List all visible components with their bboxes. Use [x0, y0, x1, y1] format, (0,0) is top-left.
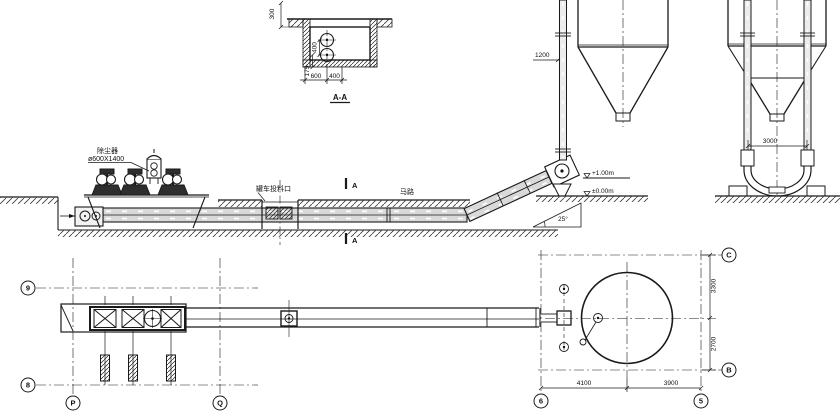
- dim-circle-spacing: 400: [312, 42, 319, 53]
- incline-angle-label: 25°: [558, 215, 568, 223]
- svg-text:9: 9: [26, 284, 30, 293]
- section-mark-top-label: A: [352, 181, 358, 190]
- grid-bubble-q: Q: [213, 396, 227, 410]
- svg-text:B: B: [726, 366, 732, 375]
- dim-width-right: 400: [329, 73, 340, 80]
- dust-collector: [147, 149, 161, 184]
- section-mark-bottom-label: A: [352, 236, 358, 245]
- silo-2-elevation: 3000: [715, 0, 840, 203]
- motor-unit: [92, 169, 122, 195]
- section-aa-title: A-A: [333, 93, 347, 102]
- screw-drive-motors: [92, 169, 188, 195]
- silo-1-body: [578, 0, 668, 127]
- dim-center-to-b-label: 2700: [711, 336, 718, 351]
- dim-pipe-spacing-label: 3000: [763, 138, 778, 145]
- drawing-svg: 300 400 175 600 400 A-A: [0, 0, 840, 416]
- screw-opening: [94, 309, 181, 328]
- svg-text:6: 6: [539, 397, 543, 406]
- main-elevation: 除尘器 ø600X1400 罐车投料口 A A 马路: [0, 146, 648, 245]
- dim-left-span-label: 4100: [577, 380, 592, 387]
- dim-right-span-label: 3900: [664, 380, 679, 387]
- conveyor-head-drive: [545, 155, 580, 196]
- dust-collector-name-label: 除尘器: [97, 146, 118, 155]
- grid-bubble-6: 6: [534, 394, 548, 408]
- silo-1-elevation: 1200: [533, 0, 668, 160]
- svg-text:P: P: [70, 399, 75, 408]
- plan-right-dims: [702, 253, 716, 372]
- incline-angle-triangle: [533, 203, 581, 227]
- svg-text:Q: Q: [217, 399, 223, 408]
- level-ground-label: ±0.00m: [592, 188, 614, 195]
- dust-collector-size-label: ø600X1400: [88, 156, 124, 163]
- svg-text:5: 5: [699, 397, 703, 406]
- road-label: 马路: [400, 187, 414, 196]
- grid-bubble-9: 9: [21, 281, 35, 295]
- svg-text:C: C: [726, 251, 732, 260]
- grid-bubble-b: B: [722, 363, 736, 377]
- dim-pipe-offset-label: 1200: [535, 52, 550, 59]
- section-aa-detail: 300 400 175 600 400 A-A: [269, 1, 392, 103]
- feed-port-plan: [281, 300, 297, 337]
- engineering-drawing-canvas: 300 400 175 600 400 A-A: [0, 0, 840, 416]
- grid-bubble-5: 5: [694, 394, 708, 408]
- level-discharge-label: +1.00m: [592, 170, 614, 177]
- grid-bubble-c: C: [722, 248, 736, 262]
- plan-conveyor: 9 8 P Q: [21, 258, 540, 410]
- tail-drive-unit: [60, 207, 103, 226]
- dim-width-left: 600: [311, 73, 322, 80]
- dim-c-to-center-label: 3300: [711, 278, 718, 293]
- plan-bottom-dims: [539, 378, 703, 392]
- grid-bubble-p: P: [66, 396, 80, 410]
- feed-port-label: 罐车投料口: [256, 184, 291, 193]
- motor-unit: [158, 169, 188, 195]
- dim-depth: 300: [269, 8, 276, 19]
- elevator-plan-detail: [541, 285, 603, 352]
- motor-unit: [120, 169, 150, 195]
- svg-text:8: 8: [26, 381, 30, 390]
- grid-bubble-8: 8: [21, 378, 35, 392]
- plan-silo: C B 6 5: [534, 248, 736, 408]
- flow-arrow-icon: [69, 214, 75, 218]
